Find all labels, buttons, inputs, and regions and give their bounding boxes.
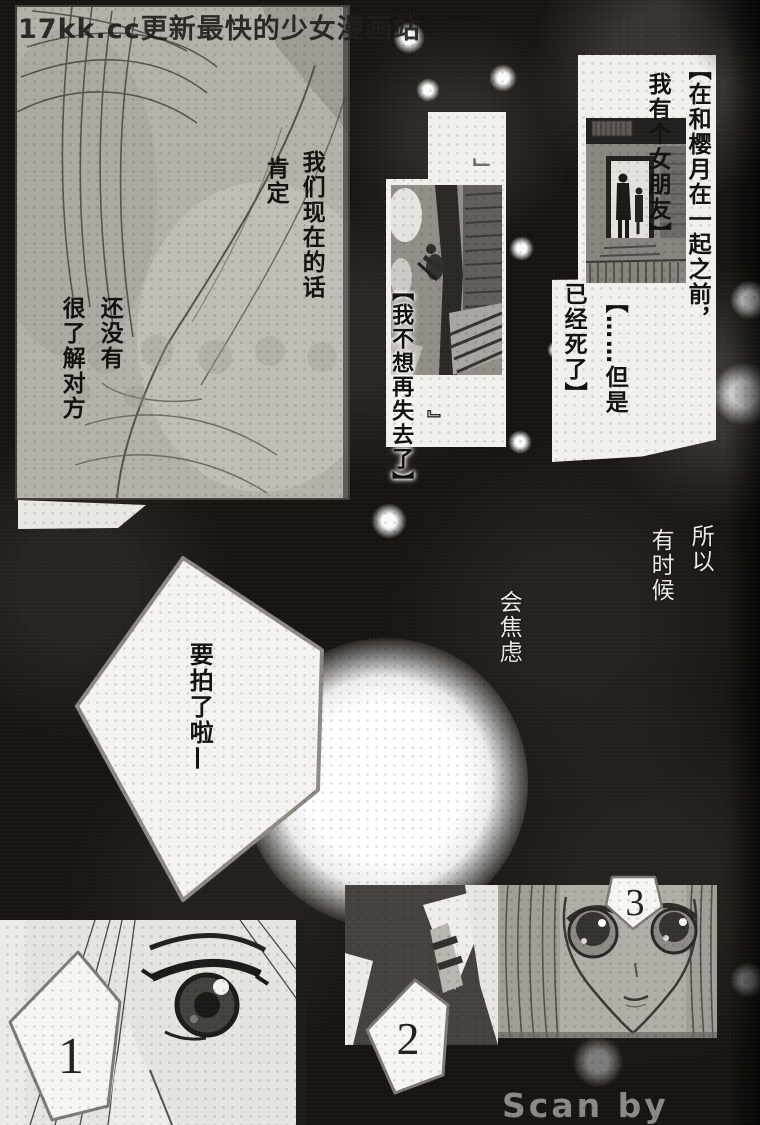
bubble-text-photo-time: 要拍了啦— (186, 642, 211, 772)
caption-had-girlfriend: 我有个女朋友】 (645, 72, 669, 247)
caption-already-died: 已经死了】 (561, 282, 585, 407)
badge-number-2: 2 (397, 1013, 420, 1064)
dialogue-we-now: 我们现在的话 (299, 150, 323, 300)
badge-number-3: 3 (626, 882, 645, 924)
site-watermark: 17kk.cc更新最快的少女漫画站 (18, 7, 421, 46)
bokeh-light (730, 962, 760, 998)
photo-doorway-art (586, 118, 686, 283)
paper-wedge (18, 496, 146, 532)
dialogue-surely: 肯定 (263, 156, 287, 206)
panel-badge-1: 1 (5, 945, 130, 1125)
bokeh-light (509, 236, 534, 261)
caption-dont-want-to-lose: 【我不想再失去了】 (389, 279, 412, 495)
dialogue-understand: 很了解对方 (59, 296, 83, 421)
caption-before-sakurazuki: 【在和樱月在一起之前， (685, 57, 709, 332)
bokeh-light (371, 503, 407, 539)
bokeh-light (508, 430, 532, 454)
dialogue-not-yet: 还没有 (97, 296, 121, 371)
scan-credit: Scan by Osora (502, 1086, 760, 1125)
monologue-anxious: 会焦虑 (496, 590, 520, 665)
manga-page: 我们现在的话 肯定 还没有 很了解对方 」 【我不想再失去了】 』 (0, 0, 760, 1125)
quote-mark-top: 」 (470, 158, 493, 182)
monologue-sometimes: 有时候 (648, 528, 672, 603)
monologue-so: 所以 (688, 524, 712, 574)
panel-badge-2: 2 (360, 972, 455, 1100)
bokeh-light (416, 78, 440, 102)
panel-badge-3: 3 (598, 870, 670, 936)
quote-mark-bottom: 』 (424, 410, 444, 431)
badge-number-1: 1 (58, 1028, 84, 1085)
bokeh-light (489, 64, 517, 92)
bokeh-light (572, 1036, 624, 1088)
bokeh-light (712, 362, 760, 426)
bokeh-light (730, 280, 760, 320)
caption-but: 【……但是 (602, 290, 626, 415)
